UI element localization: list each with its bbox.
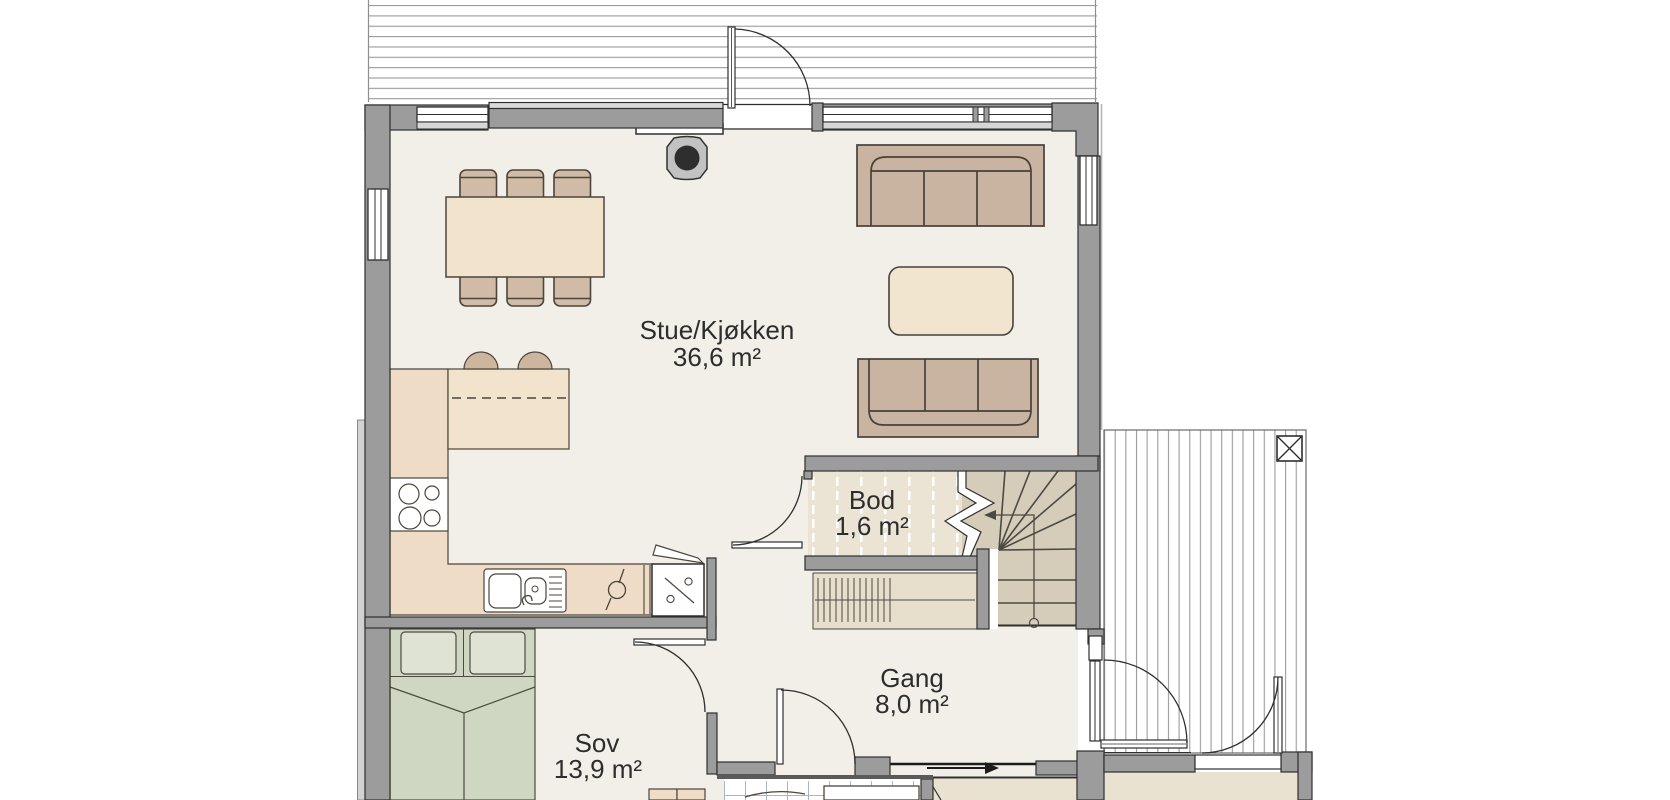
svg-text:36,6 m²: 36,6 m² [673,342,761,372]
svg-text:Stue/Kjøkken: Stue/Kjøkken [640,315,795,345]
svg-text:1,6 m²: 1,6 m² [835,511,909,541]
svg-text:8,0 m²: 8,0 m² [875,689,949,719]
svg-text:13,9 m²: 13,9 m² [554,754,642,784]
